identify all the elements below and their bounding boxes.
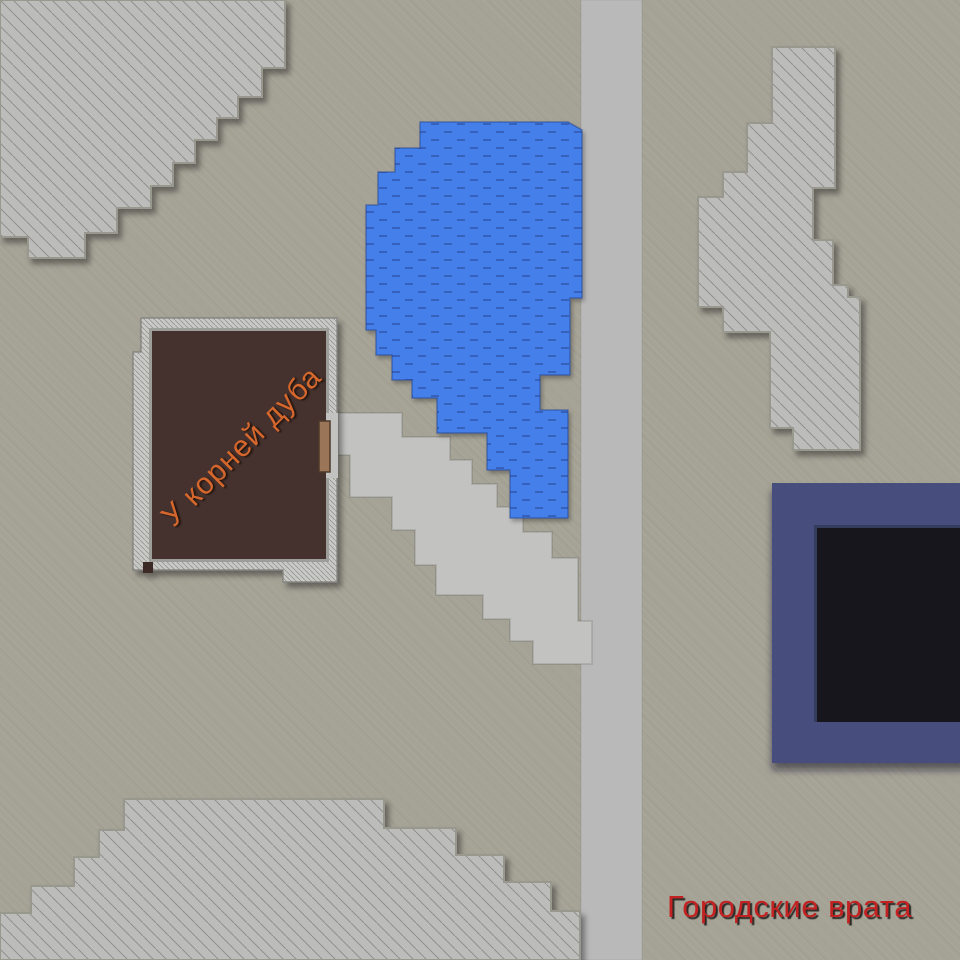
city-gate-structure[interactable] [772,483,960,763]
map-canvas [0,0,960,960]
cliff-top-left [0,0,285,258]
gate-bevel-top [814,525,960,528]
tavern-back-gap [143,562,153,573]
location-label-city-gate[interactable]: Городские врата [667,889,912,925]
tavern-door[interactable] [319,421,330,472]
gate-inner [814,525,960,722]
cliff-top-right [698,47,860,450]
road-vertical [581,0,642,960]
cliff-bottom-left [0,799,580,960]
game-map: У корней дуба Городские врата [0,0,960,960]
gate-bevel-left [814,525,817,722]
